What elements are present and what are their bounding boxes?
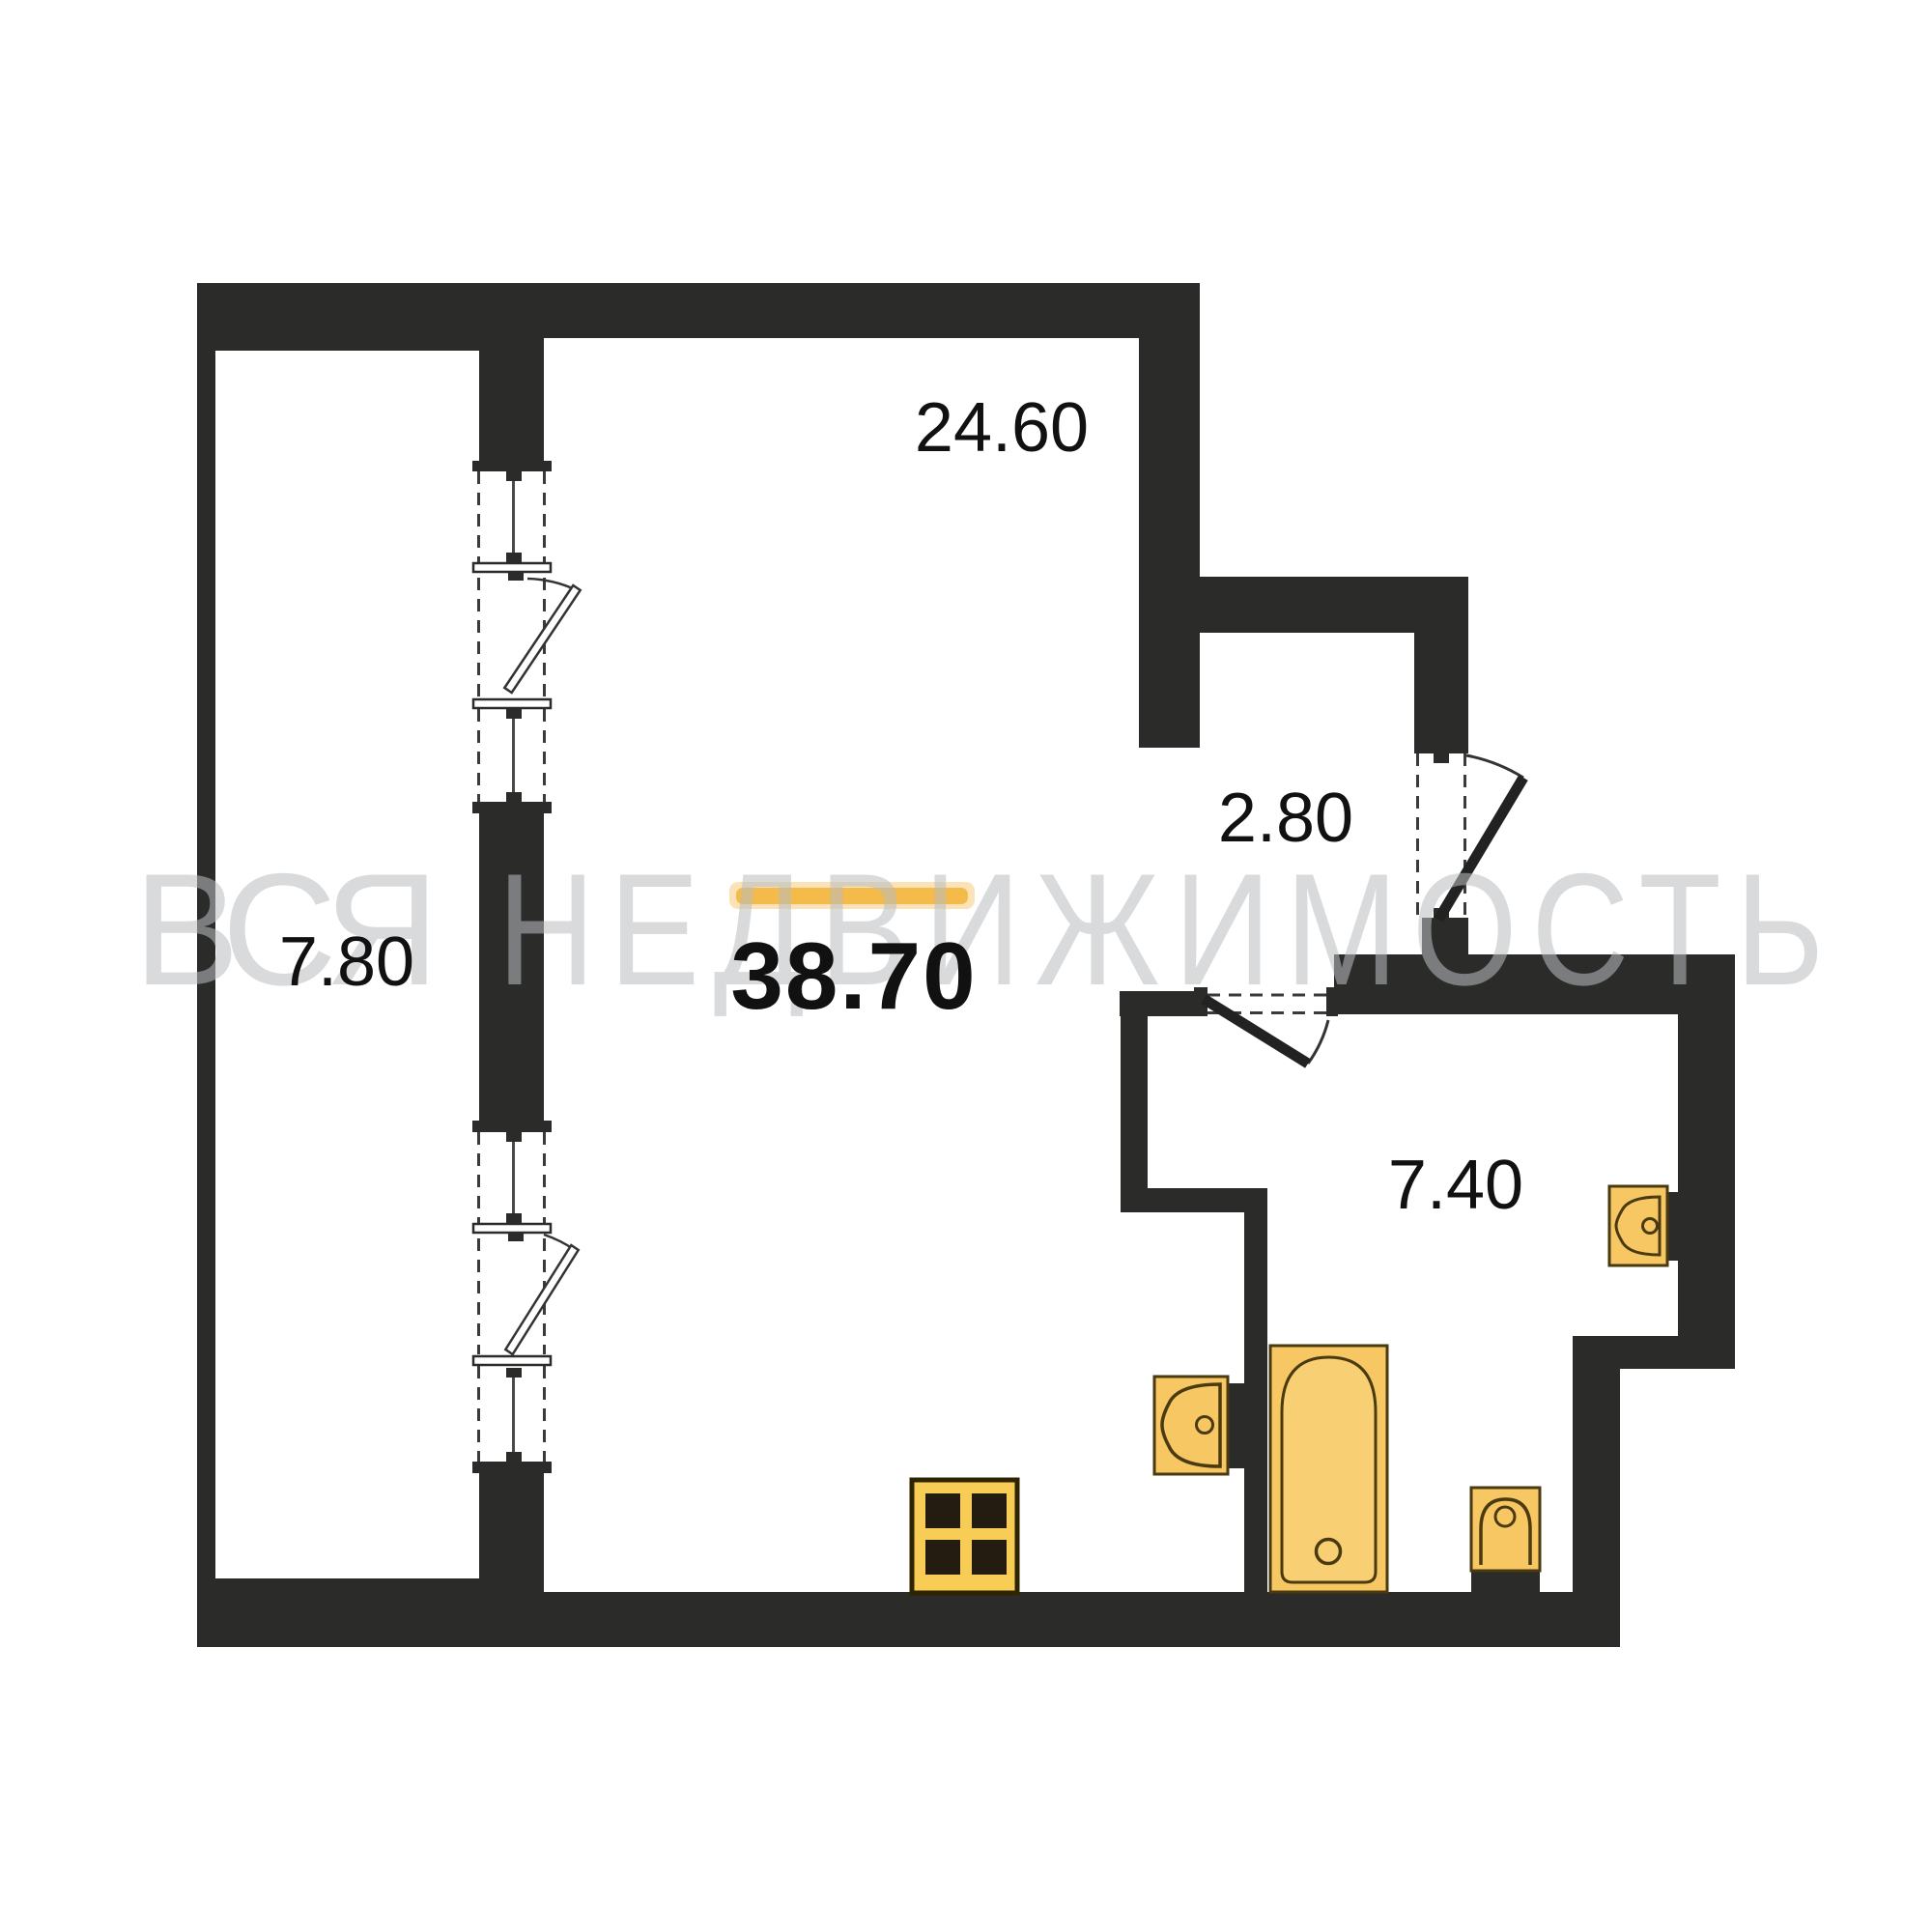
svg-text:24.60: 24.60 xyxy=(915,389,1089,467)
svg-text:НЕДВИЖИМОСТЬ: НЕДВИЖИМОСТЬ xyxy=(497,840,1838,1018)
svg-text:2.80: 2.80 xyxy=(1218,780,1353,857)
svg-text:7.80: 7.80 xyxy=(279,923,414,1001)
svg-text:7.40: 7.40 xyxy=(1388,1147,1523,1224)
svg-text:38.70: 38.70 xyxy=(730,923,977,1029)
